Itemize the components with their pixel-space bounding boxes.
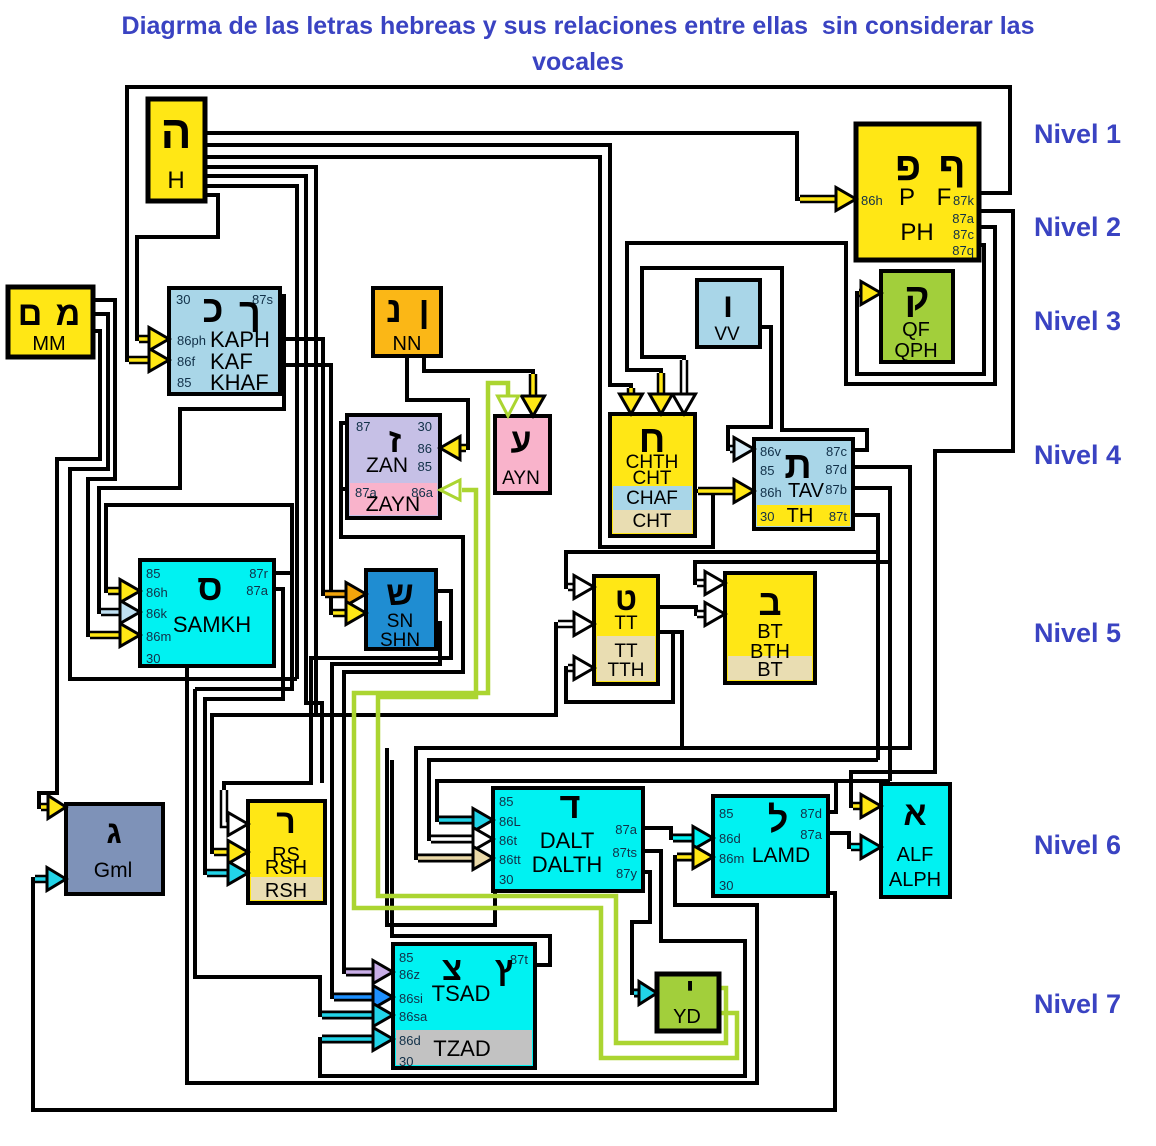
svg-text:א: א — [903, 795, 926, 833]
svg-text:85: 85 — [146, 566, 160, 581]
svg-text:87a: 87a — [800, 827, 822, 842]
svg-text:ל: ל — [768, 799, 789, 840]
svg-text:ף: ף — [939, 145, 966, 189]
svg-text:87a: 87a — [952, 211, 974, 226]
svg-text:85: 85 — [719, 806, 733, 821]
svg-text:TAV: TAV — [788, 480, 825, 502]
svg-text:LAMD: LAMD — [752, 844, 810, 867]
svg-text:87b: 87b — [825, 482, 847, 497]
svg-text:VV: VV — [714, 324, 740, 345]
svg-text:י: י — [685, 973, 694, 1006]
svg-text:ש: ש — [386, 575, 413, 613]
svg-text:KHAF: KHAF — [210, 370, 269, 395]
svg-text:ס: ס — [197, 567, 222, 608]
svg-text:DALT: DALT — [540, 828, 595, 853]
svg-text:86f: 86f — [177, 354, 195, 369]
svg-text:מ: מ — [56, 295, 81, 333]
svg-text:ט: ט — [615, 581, 637, 617]
svg-text:85: 85 — [177, 375, 191, 390]
svg-text:RSH: RSH — [265, 880, 307, 902]
svg-text:ZAN: ZAN — [366, 454, 408, 477]
svg-text:TH: TH — [787, 505, 814, 527]
svg-text:BT: BT — [757, 659, 783, 681]
svg-text:ALPH: ALPH — [889, 869, 941, 891]
svg-text:SAMKH: SAMKH — [173, 612, 251, 637]
svg-text:ר: ר — [276, 803, 296, 841]
svg-text:vocales: vocales — [532, 48, 624, 76]
svg-text:CHT: CHT — [632, 511, 671, 532]
svg-text:86d: 86d — [719, 831, 741, 846]
svg-text:86m: 86m — [146, 629, 171, 644]
svg-text:DALTH: DALTH — [532, 852, 603, 877]
svg-text:87t: 87t — [829, 509, 847, 524]
svg-text:TSAD: TSAD — [432, 981, 491, 1006]
svg-text:Gml: Gml — [94, 859, 133, 882]
svg-text:86h: 86h — [861, 193, 883, 208]
svg-text:NN: NN — [393, 333, 422, 355]
svg-text:Nivel 2: Nivel 2 — [1034, 212, 1121, 242]
svg-text:SN: SN — [387, 611, 413, 632]
svg-text:ALF: ALF — [897, 844, 934, 866]
svg-text:87y: 87y — [616, 866, 637, 881]
svg-text:30: 30 — [418, 419, 432, 434]
svg-text:87r: 87r — [249, 566, 268, 581]
svg-text:87a: 87a — [615, 822, 637, 837]
svg-text:86ph: 86ph — [177, 333, 206, 348]
svg-text:86z: 86z — [399, 967, 420, 982]
svg-text:ק: ק — [905, 277, 930, 319]
svg-text:86L: 86L — [499, 814, 521, 829]
svg-text:TT: TT — [614, 613, 638, 634]
svg-text:86si: 86si — [399, 991, 423, 1006]
svg-text:ZAYN: ZAYN — [366, 493, 420, 516]
svg-text:87c: 87c — [953, 227, 974, 242]
svg-text:87k: 87k — [953, 193, 974, 208]
svg-text:Diagrma de las letras hebreas: Diagrma de las letras hebreas y sus rela… — [122, 12, 1035, 40]
svg-text:ג: ג — [106, 814, 121, 850]
svg-text:SHN: SHN — [380, 630, 420, 651]
svg-text:87: 87 — [356, 419, 370, 434]
svg-text:H: H — [167, 167, 184, 194]
svg-text:86h: 86h — [760, 485, 782, 500]
svg-text:86: 86 — [418, 441, 432, 456]
svg-text:CHAF: CHAF — [626, 488, 678, 509]
svg-text:30: 30 — [399, 1054, 413, 1069]
svg-text:Nivel 1: Nivel 1 — [1034, 119, 1121, 149]
svg-text:TT: TT — [614, 641, 638, 662]
svg-text:Nivel 3: Nivel 3 — [1034, 306, 1121, 336]
svg-text:TZAD: TZAD — [433, 1036, 490, 1061]
svg-text:MM: MM — [32, 333, 65, 355]
svg-text:ן: ן — [419, 289, 430, 330]
svg-text:ם: ם — [18, 295, 43, 333]
svg-text:87d: 87d — [800, 806, 822, 821]
svg-text:כ: כ — [202, 289, 223, 331]
svg-text:TTH: TTH — [608, 660, 645, 681]
svg-text:30: 30 — [499, 872, 513, 887]
svg-text:QF: QF — [902, 319, 930, 341]
svg-text:ה: ה — [160, 106, 191, 158]
svg-text:Nivel 5: Nivel 5 — [1034, 618, 1121, 648]
svg-text:Nivel 7: Nivel 7 — [1034, 989, 1121, 1019]
svg-text:ד: ד — [560, 785, 581, 826]
svg-text:נ: נ — [386, 289, 402, 330]
svg-text:85: 85 — [760, 463, 774, 478]
svg-text:ץ: ץ — [495, 950, 513, 987]
svg-text:PH: PH — [900, 219, 933, 246]
svg-text:ע: ע — [510, 422, 531, 460]
svg-text:ו: ו — [723, 287, 733, 325]
svg-text:Nivel 6: Nivel 6 — [1034, 830, 1121, 860]
svg-text:85: 85 — [499, 794, 513, 809]
svg-text:87a: 87a — [246, 583, 268, 598]
svg-text:86m: 86m — [719, 851, 744, 866]
svg-text:86d: 86d — [399, 1033, 421, 1048]
svg-text:85: 85 — [418, 459, 432, 474]
svg-text:87d: 87d — [825, 462, 847, 477]
svg-text:Nivel 4: Nivel 4 — [1034, 440, 1121, 470]
svg-text:ב: ב — [758, 582, 781, 623]
svg-text:87ts: 87ts — [612, 845, 637, 860]
svg-text:86h: 86h — [146, 585, 168, 600]
svg-text:YD: YD — [673, 1006, 701, 1028]
svg-text:P: P — [899, 184, 915, 211]
svg-text:85: 85 — [399, 950, 413, 965]
svg-text:RSH: RSH — [265, 857, 307, 879]
svg-text:פ: פ — [895, 145, 921, 189]
svg-text:87c: 87c — [826, 444, 847, 459]
svg-text:86sa: 86sa — [399, 1009, 428, 1024]
svg-text:86t: 86t — [499, 833, 517, 848]
svg-text:30: 30 — [760, 509, 774, 524]
svg-text:BT: BT — [757, 621, 783, 643]
svg-text:86v: 86v — [760, 444, 781, 459]
svg-text:86tt: 86tt — [499, 852, 521, 867]
svg-text:30: 30 — [146, 651, 160, 666]
svg-text:AYN: AYN — [502, 468, 540, 489]
svg-text:30: 30 — [719, 878, 733, 893]
svg-text:QPH: QPH — [894, 340, 937, 362]
svg-text:F: F — [937, 184, 952, 211]
svg-text:30: 30 — [176, 292, 190, 307]
svg-text:86k: 86k — [146, 606, 167, 621]
svg-text:87q: 87q — [952, 243, 974, 258]
svg-text:CHT: CHT — [632, 468, 671, 489]
